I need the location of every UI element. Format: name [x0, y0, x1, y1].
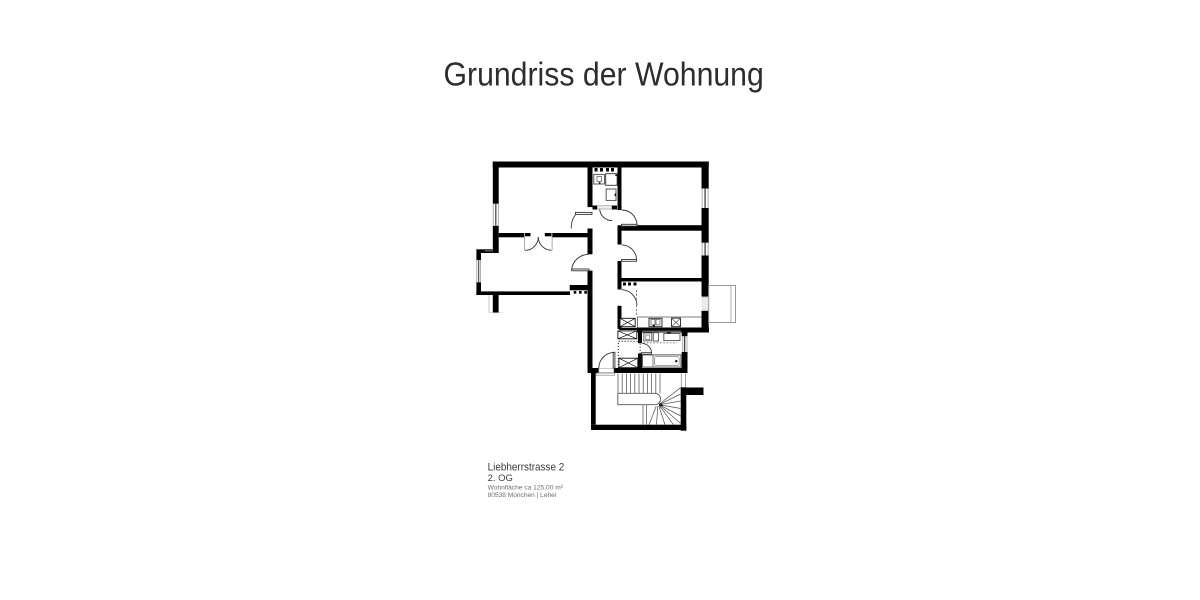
svg-text:Wohnfläche ca 125,00 m²: Wohnfläche ca 125,00 m²	[488, 484, 564, 491]
svg-text:Grundriss der Wohnung: Grundriss der Wohnung	[444, 55, 764, 93]
svg-text:80538 München | Lehel: 80538 München | Lehel	[488, 492, 557, 499]
svg-text:Liebherrstrasse 2: Liebherrstrasse 2	[488, 461, 565, 473]
svg-text:2. OG: 2. OG	[488, 473, 513, 484]
